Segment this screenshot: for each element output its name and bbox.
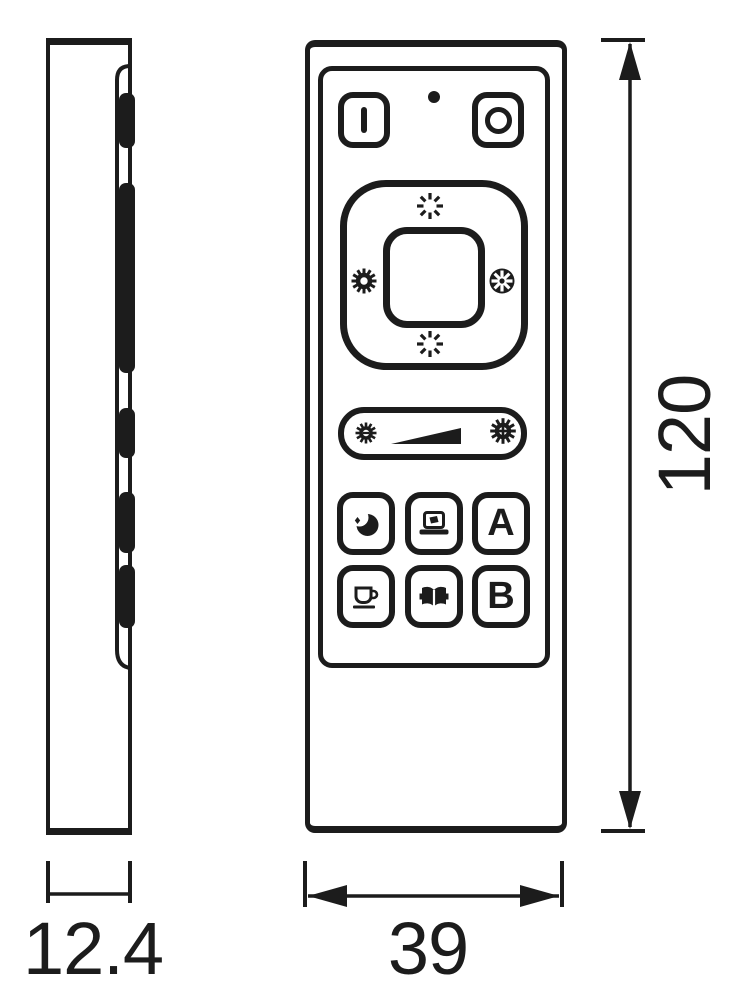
burst-icon <box>415 191 445 221</box>
side-bump-power-buttons <box>119 93 135 148</box>
width-dimension-line <box>295 855 577 915</box>
sun-gear-icon <box>349 266 379 296</box>
arrowhead-down-icon <box>619 791 641 829</box>
reading-mode-button <box>405 565 463 628</box>
height-dimension-label: 120 <box>648 335 732 535</box>
cup-icon <box>349 583 383 611</box>
snowflake-icon <box>487 266 517 296</box>
preset-b-button: B <box>472 565 530 628</box>
button-panel: A B <box>318 66 550 668</box>
dpad-center-button <box>383 227 485 328</box>
preset-b-label: B <box>487 577 514 615</box>
sun-plus-icon <box>488 416 518 446</box>
power-off-icon <box>485 107 512 134</box>
power-off-button <box>472 92 524 148</box>
dpad <box>340 180 528 370</box>
coffee-mode-button <box>337 565 395 628</box>
side-bump-slider <box>119 408 135 458</box>
width-dimension-label: 39 <box>328 912 528 986</box>
book-icon <box>417 583 451 611</box>
burst-icon <box>415 329 445 359</box>
night-mode-button <box>337 492 395 555</box>
led-indicator <box>428 91 440 103</box>
preset-a-button: A <box>472 492 530 555</box>
arrowhead-up-icon <box>619 42 641 80</box>
brightness-ramp-icon <box>391 424 461 444</box>
side-bump-button-row-2 <box>119 565 135 628</box>
power-on-button <box>338 92 390 148</box>
arrowhead-left-icon <box>308 885 347 907</box>
remote-front-view: A B <box>305 40 567 833</box>
depth-dimension-label: 12.4 <box>15 912 171 986</box>
moon-icon <box>351 509 381 539</box>
sun-minus-icon <box>354 421 378 445</box>
movie-mode-button <box>405 492 463 555</box>
arrowhead-right-icon <box>520 885 559 907</box>
side-profile-view <box>40 32 145 842</box>
remote-control-technical-drawing: A B <box>0 0 743 1000</box>
laptop-icon <box>417 510 451 538</box>
side-bump-dpad <box>119 183 135 373</box>
power-on-icon <box>361 107 367 133</box>
side-bump-button-row-1 <box>119 492 135 553</box>
preset-a-label: A <box>487 504 514 542</box>
depth-dimension-line <box>40 855 145 911</box>
brightness-slider-row <box>338 407 527 460</box>
